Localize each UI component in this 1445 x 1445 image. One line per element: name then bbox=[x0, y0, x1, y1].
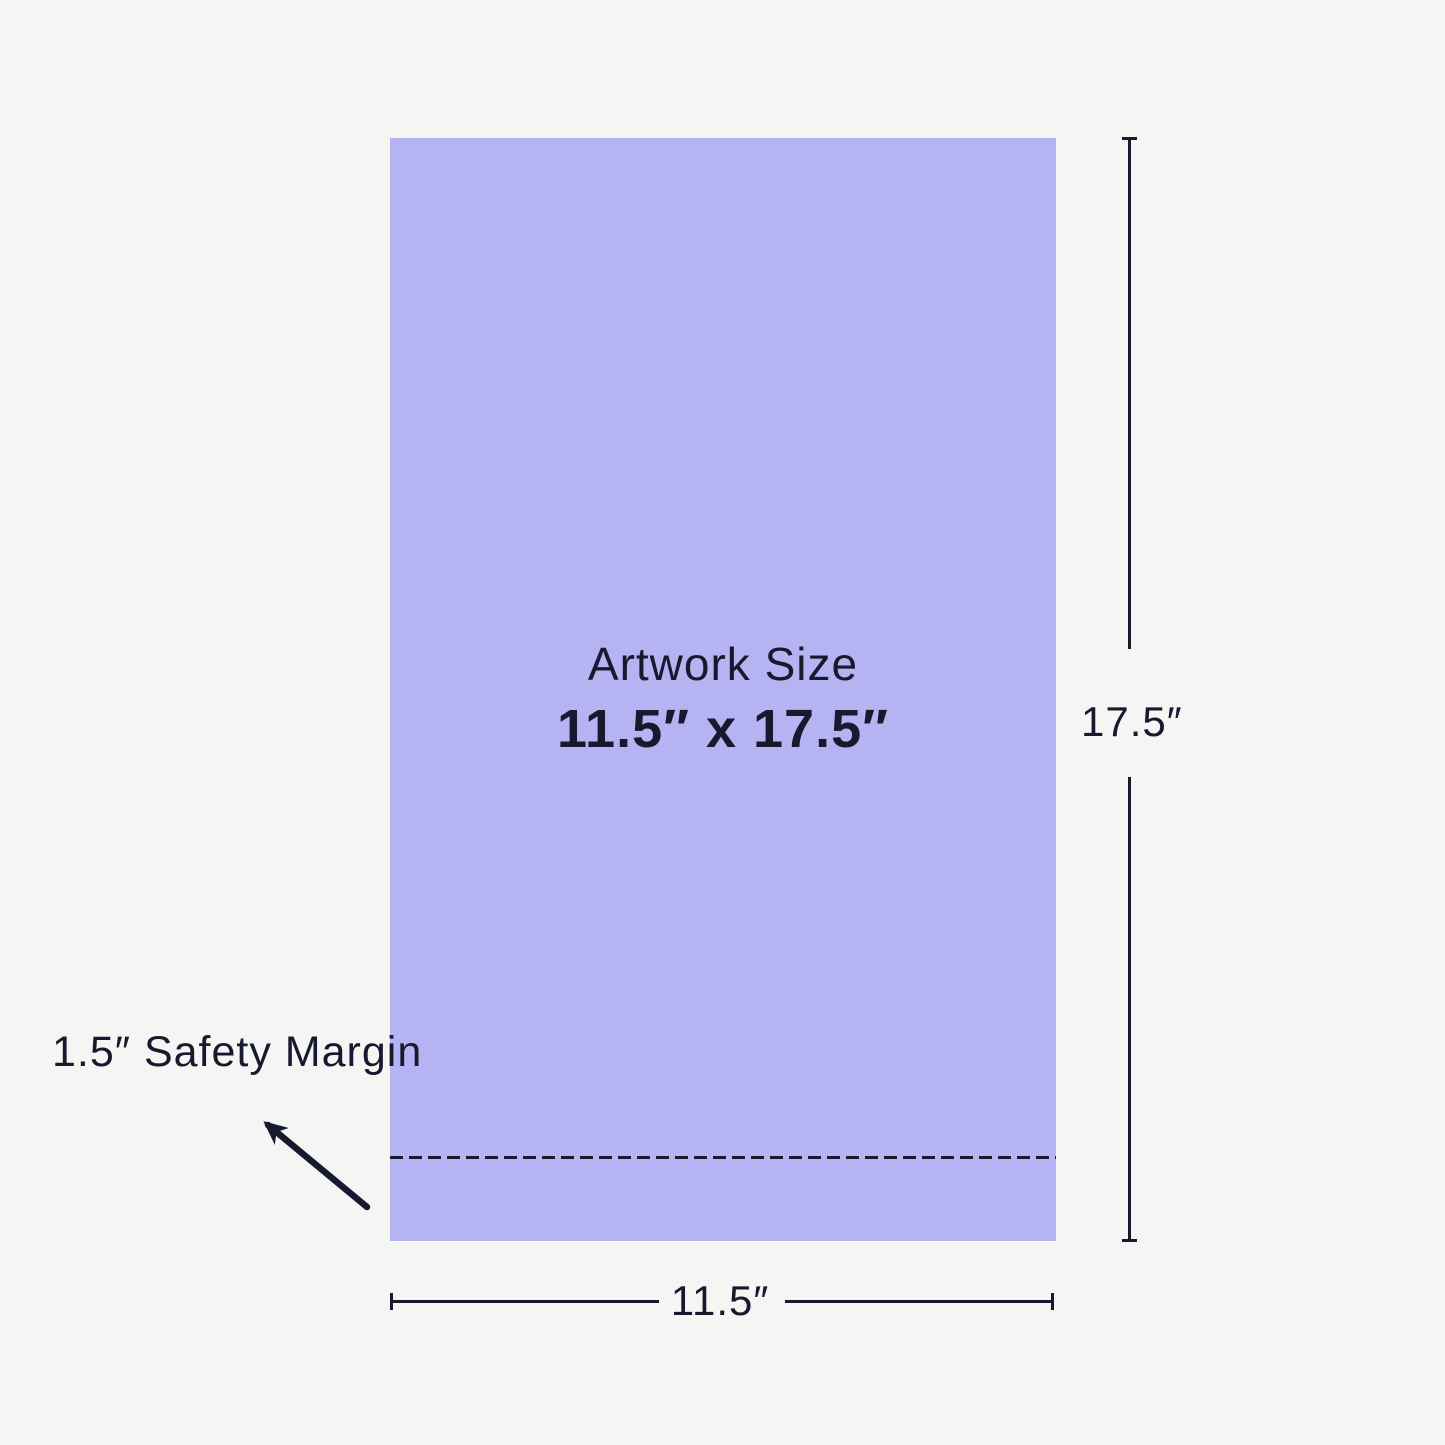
artwork-area: Artwork Size 11.5″ x 17.5″ bbox=[390, 138, 1056, 1241]
artwork-size-diagram: Artwork Size 11.5″ x 17.5″ 17.5″ 11.5″ 1… bbox=[0, 0, 1445, 1445]
artwork-text-block: Artwork Size 11.5″ x 17.5″ bbox=[557, 638, 889, 762]
height-dim-upper-segment bbox=[1128, 137, 1131, 649]
artwork-size-title: Artwork Size bbox=[557, 638, 889, 691]
width-dim-label: 11.5″ bbox=[660, 1278, 780, 1324]
width-dim-right-tick bbox=[1051, 1293, 1054, 1310]
height-dim-label: 17.5″ bbox=[1081, 699, 1181, 745]
artwork-size-value: 11.5″ x 17.5″ bbox=[557, 697, 889, 762]
width-dim-left-segment bbox=[390, 1300, 659, 1303]
safety-margin-dashed-line bbox=[390, 1156, 1056, 1159]
safety-margin-arrow-icon bbox=[248, 1102, 378, 1217]
height-dim-lower-segment bbox=[1128, 777, 1131, 1241]
height-dim-bottom-tick bbox=[1122, 1239, 1137, 1242]
safety-margin-label: 1.5″ Safety Margin bbox=[52, 1028, 422, 1076]
width-dim-right-segment bbox=[785, 1300, 1054, 1303]
